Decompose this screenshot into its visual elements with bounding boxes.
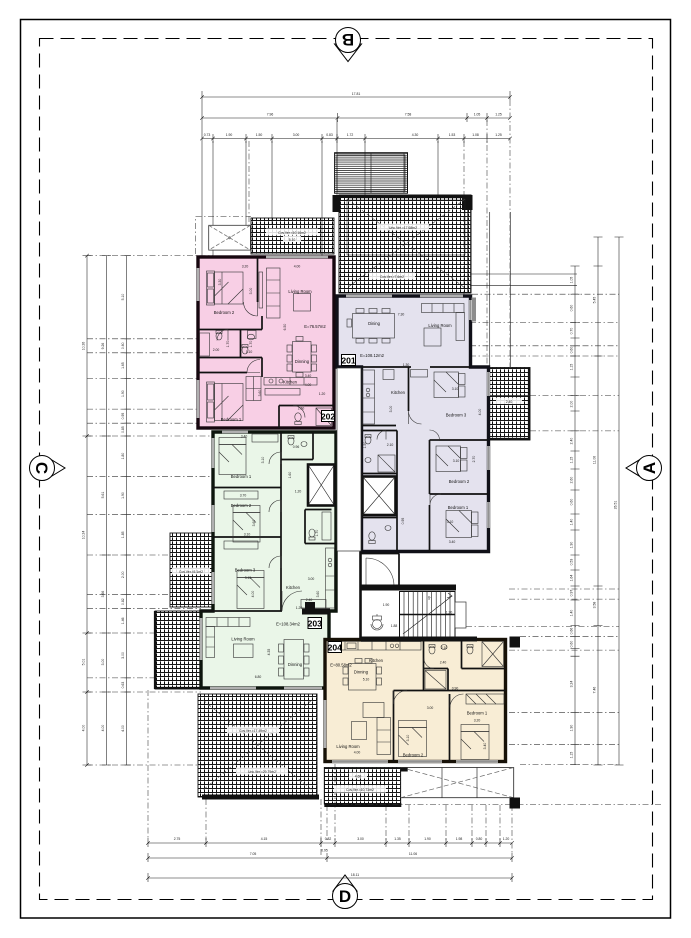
svg-text:4.00: 4.00	[305, 383, 312, 387]
svg-text:0.70: 0.70	[570, 328, 574, 335]
svg-text:18.11: 18.11	[351, 873, 359, 877]
svg-text:E=108.12m2: E=108.12m2	[360, 353, 385, 358]
svg-text:1.90: 1.90	[383, 603, 390, 607]
svg-text:3.60: 3.60	[252, 520, 256, 527]
svg-text:Cov.Ver.=7.6m2: Cov.Ver.=7.6m2	[380, 275, 404, 279]
svg-text:26.51: 26.51	[614, 501, 618, 510]
svg-text:3.20: 3.20	[242, 265, 249, 269]
svg-text:Bedroom 1: Bedroom 1	[448, 505, 469, 510]
svg-text:3.58: 3.58	[593, 602, 597, 609]
svg-text:3.00: 3.00	[121, 652, 125, 659]
svg-text:3.20: 3.20	[474, 719, 481, 723]
svg-text:E=76.57m2: E=76.57m2	[304, 324, 326, 329]
svg-text:5.01: 5.01	[82, 659, 86, 666]
svg-text:Kitchen: Kitchen	[286, 585, 301, 590]
svg-text:3.40: 3.40	[449, 540, 456, 544]
svg-text:1.08: 1.08	[472, 133, 479, 137]
svg-text:Kitchen: Kitchen	[369, 658, 384, 663]
svg-text:1.53: 1.53	[449, 133, 456, 137]
svg-text:0.95: 0.95	[401, 518, 405, 525]
svg-text:202: 202	[321, 412, 336, 422]
svg-text:1.50: 1.50	[256, 133, 263, 137]
svg-text:Kitchen: Kitchen	[283, 380, 298, 385]
svg-text:1.85: 1.85	[121, 531, 125, 538]
svg-text:7.30: 7.30	[398, 313, 405, 317]
svg-text:Unc.Ver.=29.79m2: Unc.Ver.=29.79m2	[248, 770, 276, 774]
svg-text:3.00: 3.00	[427, 706, 434, 710]
svg-text:1.35: 1.35	[394, 837, 401, 841]
svg-text:0.85: 0.85	[121, 426, 125, 433]
svg-text:0.90: 0.90	[452, 687, 459, 691]
svg-text:1.05: 1.05	[570, 277, 574, 284]
svg-text:1.90: 1.90	[570, 542, 574, 549]
svg-text:2.10: 2.10	[387, 443, 394, 447]
svg-text:1.72: 1.72	[347, 133, 354, 137]
svg-text:3.00: 3.00	[357, 837, 364, 841]
svg-text:1.40: 1.40	[570, 519, 574, 526]
svg-text:1.40: 1.40	[570, 610, 574, 617]
svg-text:1.88: 1.88	[391, 624, 398, 628]
svg-text:3.40: 3.40	[241, 435, 248, 439]
svg-text:1.15: 1.15	[570, 752, 574, 759]
svg-text:0.82: 0.82	[325, 837, 332, 841]
svg-text:3.10: 3.10	[447, 520, 454, 524]
svg-text:4.00: 4.00	[294, 265, 301, 269]
svg-text:3.10: 3.10	[244, 533, 251, 537]
svg-text:17.81: 17.81	[352, 92, 361, 96]
svg-text:2.60: 2.60	[570, 477, 574, 484]
svg-text:3.30: 3.30	[218, 279, 222, 286]
svg-text:4.00: 4.00	[478, 409, 482, 416]
svg-text:11.06: 11.06	[409, 852, 417, 856]
svg-text:1.90: 1.90	[226, 133, 233, 137]
svg-text:Living Room: Living Room	[336, 744, 360, 749]
svg-text:7.96: 7.96	[267, 113, 274, 117]
svg-text:1.20: 1.20	[446, 611, 453, 615]
svg-text:0.60: 0.60	[570, 347, 574, 354]
svg-text:3.10: 3.10	[453, 459, 460, 463]
svg-text:Bedroom 2: Bedroom 2	[403, 753, 424, 758]
svg-text:0.83: 0.83	[326, 133, 333, 137]
svg-text:201: 201	[341, 356, 356, 366]
svg-text:3.60: 3.60	[316, 591, 320, 598]
svg-text:1.90: 1.90	[121, 390, 125, 397]
svg-text:1.90: 1.90	[121, 492, 125, 499]
svg-text:4.00: 4.00	[354, 751, 361, 755]
svg-text:0.95: 0.95	[121, 413, 125, 420]
svg-text:1.64: 1.64	[570, 575, 574, 582]
svg-text:Bedroom 2: Bedroom 2	[231, 503, 252, 508]
svg-text:7.05: 7.05	[250, 852, 257, 856]
svg-text:1.70: 1.70	[315, 530, 319, 537]
svg-text:0.63: 0.63	[121, 682, 125, 689]
svg-text:4.00: 4.00	[101, 725, 105, 732]
svg-text:5.10: 5.10	[121, 294, 125, 301]
svg-text:11.06: 11.06	[593, 456, 597, 464]
svg-text:3.00: 3.00	[249, 288, 253, 295]
svg-text:1.15: 1.15	[570, 457, 574, 464]
svg-text:0.82: 0.82	[121, 598, 125, 605]
svg-text:D: D	[339, 887, 351, 906]
svg-text:3.40: 3.40	[305, 374, 312, 378]
svg-text:4.30: 4.30	[412, 133, 419, 137]
svg-text:Bedroom 2: Bedroom 2	[449, 479, 470, 484]
svg-text:0.80: 0.80	[476, 837, 483, 841]
svg-text:0.60: 0.60	[570, 305, 574, 312]
svg-text:7.58: 7.58	[405, 113, 412, 117]
svg-text:1.20: 1.20	[319, 392, 326, 396]
svg-text:4.00: 4.00	[121, 725, 125, 732]
svg-text:1.20: 1.20	[295, 490, 302, 494]
svg-text:3.40: 3.40	[483, 743, 487, 750]
svg-text:1.70: 1.70	[226, 341, 230, 348]
svg-text:1.98: 1.98	[456, 837, 463, 841]
svg-text:0.96: 0.96	[293, 445, 300, 449]
svg-text:2.10: 2.10	[441, 646, 448, 650]
svg-text:1.60: 1.60	[288, 472, 292, 479]
svg-text:2.40: 2.40	[570, 438, 574, 445]
svg-text:Bedroom 3: Bedroom 3	[235, 568, 256, 573]
svg-text:9.26: 9.26	[101, 343, 105, 350]
svg-text:5.10: 5.10	[289, 238, 296, 242]
svg-text:Bedroom 1: Bedroom 1	[231, 474, 252, 479]
svg-text:4.00: 4.00	[251, 591, 255, 598]
svg-text:Dinning: Dinning	[288, 662, 303, 667]
svg-text:Bedroom 2: Bedroom 2	[214, 310, 235, 315]
svg-text:up: up	[427, 596, 431, 600]
svg-text:3.10: 3.10	[406, 735, 410, 742]
svg-text:1.50: 1.50	[363, 442, 367, 449]
svg-text:Bedroom 1: Bedroom 1	[221, 417, 242, 422]
svg-text:1.80: 1.80	[121, 453, 125, 460]
svg-text:10.26: 10.26	[82, 342, 86, 351]
svg-text:3.66: 3.66	[101, 591, 105, 598]
svg-text:6.50: 6.50	[283, 324, 287, 331]
svg-text:Cov.Ver.=5.1m2: Cov.Ver.=5.1m2	[179, 570, 203, 574]
svg-text:1.10: 1.10	[246, 350, 253, 354]
svg-text:4.15: 4.15	[261, 837, 268, 841]
svg-text:3.15: 3.15	[245, 576, 252, 580]
svg-text:Bedroom 1: Bedroom 1	[467, 711, 488, 716]
svg-text:3.60: 3.60	[258, 390, 262, 397]
svg-text:Unc.Ver.=17.68m2: Unc.Ver.=17.68m2	[389, 226, 417, 230]
svg-text:2.40: 2.40	[306, 598, 313, 602]
svg-text:0.60: 0.60	[570, 499, 574, 506]
svg-text:3.24: 3.24	[570, 681, 574, 688]
svg-text:1.90: 1.90	[570, 725, 574, 732]
svg-text:Cov.Ver.=10.16m2: Cov.Ver.=10.16m2	[278, 231, 306, 235]
svg-text:3.70: 3.70	[240, 494, 247, 498]
svg-text:3.00: 3.00	[389, 406, 393, 413]
svg-text:Dinning: Dinning	[354, 670, 369, 675]
svg-text:1.25: 1.25	[495, 113, 502, 117]
svg-text:4.68: 4.68	[355, 775, 362, 779]
svg-text:Dining: Dining	[368, 321, 381, 326]
svg-text:2.00: 2.00	[121, 571, 125, 578]
svg-text:10.24: 10.24	[82, 531, 86, 540]
svg-text:1.05: 1.05	[474, 113, 481, 117]
svg-text:0.73: 0.73	[204, 133, 211, 137]
svg-text:2.60: 2.60	[298, 407, 305, 411]
svg-text:B: B	[342, 30, 354, 49]
svg-text:1.70: 1.70	[249, 341, 253, 348]
svg-text:3.10: 3.10	[452, 387, 459, 391]
svg-text:Bedroom 3: Bedroom 3	[446, 413, 467, 418]
svg-text:1.65: 1.65	[121, 362, 125, 369]
svg-text:Kitchen: Kitchen	[391, 390, 406, 395]
svg-text:0.60: 0.60	[570, 641, 574, 648]
svg-text:3.10: 3.10	[261, 457, 265, 464]
svg-text:6.80: 6.80	[255, 675, 262, 679]
svg-text:1.30: 1.30	[403, 363, 410, 367]
svg-text:3.00: 3.00	[308, 577, 315, 581]
svg-text:1.20: 1.20	[296, 606, 303, 610]
svg-text:Living Room: Living Room	[231, 637, 255, 642]
svg-text:E=80.58m2: E=80.58m2	[330, 663, 352, 668]
svg-text:0.53: 0.53	[570, 559, 574, 566]
svg-text:3.00: 3.00	[101, 659, 105, 666]
svg-text:0.95: 0.95	[321, 849, 328, 853]
svg-text:2.40: 2.40	[506, 400, 513, 404]
svg-text:2.00: 2.00	[570, 401, 574, 408]
svg-text:Cov.Ver.=10.73m2: Cov.Ver.=10.73m2	[346, 788, 374, 792]
svg-text:1.46: 1.46	[121, 617, 125, 624]
svg-text:5.10: 5.10	[363, 678, 370, 682]
svg-text:1.90: 1.90	[424, 837, 431, 841]
svg-text:204: 204	[328, 643, 343, 653]
svg-text:Living Room: Living Room	[428, 323, 452, 328]
svg-text:0.97: 0.97	[570, 590, 574, 597]
svg-text:203: 203	[308, 619, 323, 629]
svg-text:5.61: 5.61	[101, 492, 105, 499]
svg-text:4.00: 4.00	[82, 725, 86, 732]
svg-text:2.40: 2.40	[440, 661, 447, 665]
svg-text:1.15: 1.15	[570, 364, 574, 371]
svg-text:0.66: 0.66	[570, 628, 574, 635]
svg-text:1.20: 1.20	[503, 837, 510, 841]
svg-text:E=108.34m2: E=108.34m2	[276, 622, 301, 627]
svg-text:A: A	[640, 462, 659, 474]
svg-text:Cov.Ver.=17.49m2: Cov.Ver.=17.49m2	[239, 729, 267, 733]
svg-text:Living Room: Living Room	[288, 289, 312, 294]
svg-text:2.70: 2.70	[472, 456, 476, 463]
svg-text:2.75: 2.75	[174, 837, 181, 841]
svg-text:5.45: 5.45	[593, 297, 597, 304]
svg-text:4.35: 4.35	[267, 649, 271, 656]
svg-text:7.46: 7.46	[593, 687, 597, 694]
svg-text:2.00: 2.00	[213, 348, 220, 352]
svg-text:C: C	[32, 462, 51, 474]
svg-text:Dinning: Dinning	[295, 359, 310, 364]
svg-text:0.60: 0.60	[121, 342, 125, 349]
svg-text:1.25: 1.25	[495, 133, 502, 137]
svg-text:3.00: 3.00	[293, 133, 300, 137]
